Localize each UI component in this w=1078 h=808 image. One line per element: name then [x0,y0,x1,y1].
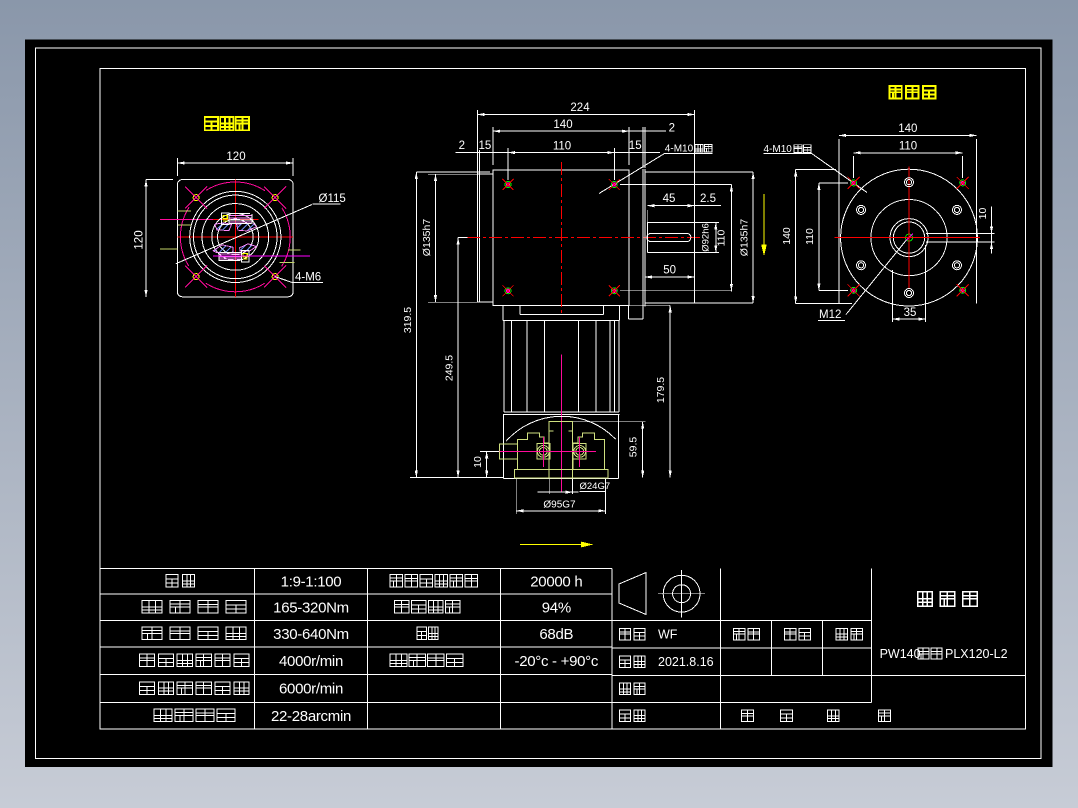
svg-text:140: 140 [898,123,917,135]
svg-text:50: 50 [663,265,676,277]
svg-text:94%: 94% [542,599,571,616]
svg-text:110: 110 [553,140,571,152]
svg-text:2: 2 [669,123,675,135]
svg-text:110: 110 [804,228,816,245]
svg-text:2.5: 2.5 [700,193,716,205]
svg-text:WF: WF [658,628,678,642]
svg-text:10: 10 [977,208,989,220]
svg-text:110: 110 [899,141,917,153]
svg-text:4-M6: 4-M6 [295,272,321,284]
svg-text:15: 15 [629,140,642,152]
svg-text:59.5: 59.5 [628,437,640,458]
svg-text:Ø135h7: Ø135h7 [421,219,433,257]
svg-text:165-320Nm: 165-320Nm [273,599,349,616]
svg-text:M12: M12 [819,309,841,321]
svg-text:249.5: 249.5 [443,355,455,381]
svg-text:PLX120-L2: PLX120-L2 [945,647,1008,661]
svg-text:68dB: 68dB [539,626,573,643]
svg-text:Ø135h7: Ø135h7 [739,219,751,257]
svg-text:22-28arcmin: 22-28arcmin [271,708,351,725]
svg-text:Ø95G7: Ø95G7 [543,500,576,511]
svg-text:Ø92h6: Ø92h6 [701,223,712,252]
svg-text:140: 140 [781,227,793,245]
svg-text:Ø115: Ø115 [319,193,346,205]
svg-text:15: 15 [479,140,492,152]
svg-text:PW140: PW140 [880,647,921,661]
svg-text:1:9-1:100: 1:9-1:100 [281,573,342,590]
svg-text:319.5: 319.5 [402,307,414,333]
svg-text:6000r/min: 6000r/min [279,681,343,698]
svg-text:120: 120 [226,151,245,163]
svg-text:179.5: 179.5 [655,377,667,403]
svg-text:-20°c - +90°c: -20°c - +90°c [515,653,599,670]
svg-text:2021.8.16: 2021.8.16 [658,655,714,669]
svg-text:20000 h: 20000 h [530,573,582,590]
svg-text:2: 2 [459,140,465,152]
svg-text:10: 10 [472,456,484,468]
svg-text:4000r/min: 4000r/min [279,653,343,670]
svg-text:140: 140 [553,119,572,131]
svg-text:45: 45 [663,193,676,205]
svg-text:35: 35 [904,307,917,319]
svg-text:330-640Nm: 330-640Nm [273,626,349,643]
svg-text:110: 110 [716,229,728,246]
svg-text:224: 224 [570,102,590,114]
svg-text:120: 120 [134,230,146,249]
